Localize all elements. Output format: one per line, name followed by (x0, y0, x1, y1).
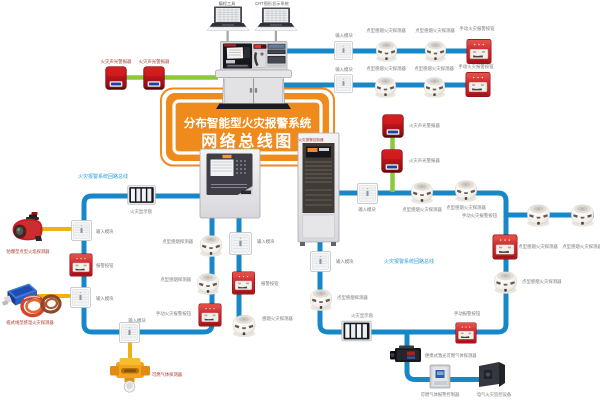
svg-text:分布智能型火灾报警系统: 分布智能型火灾报警系统 (184, 116, 312, 130)
svg-text:输入模块: 输入模块 (335, 32, 353, 39)
svg-text:点型感烟火灾探测器: 点型感烟火灾探测器 (366, 27, 406, 34)
svg-text:报警按钮: 报警按钮 (96, 262, 114, 269)
svg-text:输入模块: 输入模块 (336, 258, 354, 265)
svg-text:手动报警按钮: 手动报警按钮 (454, 310, 481, 317)
svg-text:点型感烟火灾探测器: 点型感烟火灾探测器 (518, 243, 558, 250)
svg-text:编程工具: 编程工具 (219, 0, 237, 7)
svg-text:报警按钮: 报警按钮 (261, 280, 279, 287)
svg-text:点型感烟火灾探测器: 点型感烟火灾探测器 (446, 204, 486, 211)
svg-text:点型感烟火灾探测器: 点型感烟火灾探测器 (562, 243, 600, 250)
svg-text:点型感烟火灾探测器: 点型感烟火灾探测器 (522, 278, 562, 285)
svg-text:输入模块: 输入模块 (96, 228, 114, 235)
svg-text:火灾报警控制器: 火灾报警控制器 (298, 137, 324, 142)
svg-text:感烟火灾探测器: 感烟火灾探测器 (262, 315, 293, 322)
svg-text:火灾报警系统回路总线: 火灾报警系统回路总线 (384, 258, 434, 265)
svg-text:防爆型点型火焰探测器: 防爆型点型火焰探测器 (7, 248, 51, 255)
svg-text:网络总线图: 网络总线图 (201, 132, 294, 151)
svg-text:可燃气体探测器: 可燃气体探测器 (152, 371, 183, 378)
svg-text:火灾报警系统回路总线: 火灾报警系统回路总线 (78, 173, 128, 180)
svg-text:手动火灾报警按钮: 手动火灾报警按钮 (458, 63, 494, 70)
svg-text:点型感烟探测器: 点型感烟探测器 (160, 276, 191, 283)
svg-text:可燃气体报警控制器: 可燃气体报警控制器 (421, 391, 460, 398)
svg-text:手动火灾报警按钮: 手动火灾报警按钮 (459, 25, 495, 32)
svg-text:火灾声光警报器: 火灾声光警报器 (409, 157, 440, 164)
svg-text:手动火灾报警按钮: 手动火灾报警按钮 (462, 212, 498, 219)
svg-text:手动火灾报警按钮: 手动火灾报警按钮 (156, 310, 192, 317)
svg-text:火灾声光警报器: 火灾声光警报器 (409, 122, 440, 129)
svg-text:电气火灾监控设备: 电气火灾监控设备 (477, 391, 512, 398)
svg-text:火灾显示盘: 火灾显示盘 (130, 208, 153, 215)
svg-text:点型感烟火灾探测器: 点型感烟火灾探测器 (366, 65, 406, 72)
svg-text:点型感烟火灾探测器: 点型感烟火灾探测器 (414, 65, 454, 72)
svg-text:火灾显示盘: 火灾显示盘 (351, 312, 374, 319)
svg-text:火灾声光警报器: 火灾声光警报器 (101, 58, 132, 65)
svg-text:便携式激光可燃气体探测器: 便携式激光可燃气体探测器 (425, 352, 477, 359)
svg-text:点型感烟探测器: 点型感烟探测器 (162, 238, 193, 245)
svg-text:点型感烟火灾探测器: 点型感烟火灾探测器 (402, 206, 442, 213)
svg-text:CRT图形显示系统: CRT图形显示系统 (255, 0, 289, 7)
svg-text:输入模块: 输入模块 (257, 238, 275, 245)
svg-text:点型感烟探测器: 点型感烟探测器 (337, 294, 368, 301)
svg-text:输入模块: 输入模块 (335, 66, 353, 73)
svg-text:输入模块: 输入模块 (358, 206, 376, 213)
svg-text:点型感烟火灾探测器: 点型感烟火灾探测器 (415, 27, 455, 34)
svg-text:输入模块: 输入模块 (96, 295, 114, 302)
svg-text:火灾声光警报器: 火灾声光警报器 (139, 58, 170, 65)
svg-text:缆式线型感温火灾探测器: 缆式线型感温火灾探测器 (6, 319, 54, 326)
